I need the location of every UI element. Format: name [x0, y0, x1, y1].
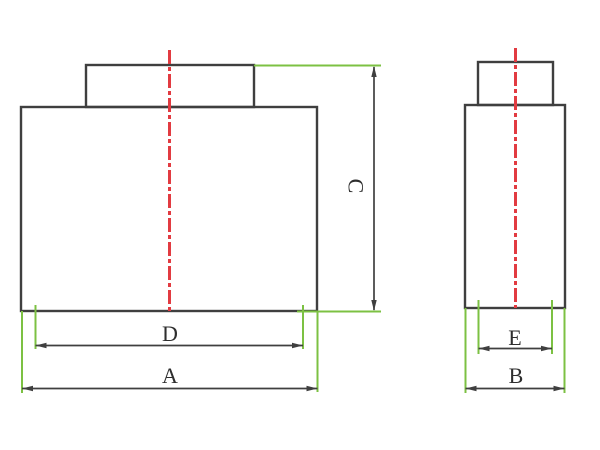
dim-label-d: D — [162, 321, 178, 346]
arrow-e-right — [541, 346, 552, 351]
arrow-b-right — [554, 386, 565, 391]
dim-label-c: C — [344, 179, 369, 194]
arrow-c-up — [371, 66, 376, 77]
arrow-d-right — [292, 343, 303, 348]
arrow-a-right — [307, 386, 318, 391]
arrow-a-left — [22, 386, 33, 391]
dim-label-a: A — [162, 363, 178, 388]
centerlines — [170, 48, 516, 311]
drawing-svg: C D A E B — [0, 0, 600, 450]
front-view-body — [21, 107, 317, 311]
arrow-c-down — [371, 300, 376, 311]
dimension-arrows — [22, 66, 565, 391]
dimension-lines — [22, 67, 565, 389]
dimension-labels: C D A E B — [162, 179, 523, 388]
arrow-e-left — [479, 346, 490, 351]
technical-drawing-canvas: C D A E B — [0, 0, 600, 450]
dim-label-e: E — [508, 325, 521, 350]
arrow-d-left — [36, 343, 47, 348]
arrow-b-left — [466, 386, 477, 391]
dim-label-b: B — [509, 363, 524, 388]
